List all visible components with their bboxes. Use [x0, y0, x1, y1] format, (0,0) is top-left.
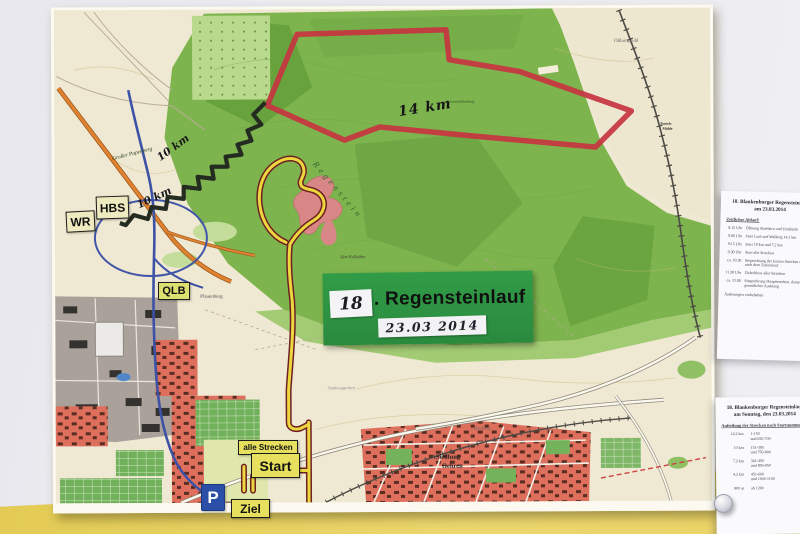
place-label-siedlung-1: Siedlung [436, 454, 461, 461]
event-title: . Regensteinlauf [374, 287, 526, 311]
place-label-siedlung-2: Gehren [442, 463, 463, 470]
schedule-text: Start alle Strecken [745, 251, 800, 257]
schedule-text: Zielschluss aller Strecken [745, 271, 800, 277]
distance-label: 4,2 km [720, 473, 751, 483]
schedule-row: ca. 12.00 Siegerehrung Hauptstrecken, da… [722, 279, 800, 290]
place-label-plauenberg: Plauenberg [200, 295, 223, 300]
start-numbers-paper: 18. Blankenburger Regensteinlauf am Sonn… [715, 397, 800, 534]
schedule-text: Start 10 km und 7,2 km [745, 243, 800, 249]
event-date-sticker: 23.03 2014 [378, 315, 487, 337]
schedule-time: 9.30 Uhr [723, 250, 742, 255]
numbers-row: 800 m ab 1200 [720, 486, 800, 492]
wall-photo: Großer Papenberg Regenstein Alte Kalköfe… [0, 0, 800, 534]
numbers-row: 7,2 km 301-450 und 850-950 [719, 459, 800, 469]
schedule-time: 11.30 Uhr [722, 271, 741, 276]
numbers-row: 4,2 km 451-600 und 1000-1150 [720, 472, 800, 482]
schedule-text: Öffnung Startbüro und Umkleide [746, 227, 800, 233]
schedule-time: 8.15 Uhr [724, 226, 743, 231]
schedule-subhead: Zeitlicher Ablauf: [726, 217, 800, 225]
push-pin-icon [714, 494, 733, 513]
place-label-heidberg: Heidberg [473, 426, 492, 431]
marker-qlb: QLB [158, 282, 190, 300]
schedule-paper: 18. Blankenburger Regensteinlauf am 23.0… [717, 191, 800, 361]
ziel-marker: Ziel [231, 499, 270, 518]
schedule-row: 8.15 Uhr Öffnung Startbüro und Umkleide [724, 226, 800, 233]
place-label-kalkoefen: Alte Kalköfen [340, 254, 366, 259]
start-marker: Start [251, 453, 300, 478]
place-label-osslumpfuhl: Oßlumpfuhl [614, 39, 639, 44]
schedule-text: Siegerehrung der kurzen Strecken direkt … [745, 259, 800, 270]
schedule-row: 11.30 Uhr Zielschluss aller Strecken [722, 271, 800, 278]
number-range: 151-300 und 750-800 [751, 445, 800, 455]
schedule-text: Start Lauf und Walking 14,2 km [745, 235, 800, 241]
number-range-extra: und 750-800 [751, 450, 800, 455]
number-range-extra: und 1000-1150 [751, 477, 800, 482]
numbers-subhead: Aufteilung der Strecken nach Startnummer… [721, 422, 800, 428]
number-range: 301-450 und 850-950 [751, 459, 800, 469]
schedule-row: 9.15 Uhr Start 10 km und 7,2 km [723, 242, 800, 249]
place-label-muehle-2: Mühle [662, 127, 672, 131]
number-range: ab 1200 [751, 486, 800, 491]
parking-sign-icon: P [201, 484, 225, 511]
marker-wr: WR [65, 210, 95, 232]
schedule-time: 9.15 Uhr [723, 242, 742, 247]
event-sign: 18 . Regensteinlauf 23.03 2014 [323, 271, 534, 346]
schedule-row: 9.30 Uhr Start alle Strecken [723, 250, 800, 257]
place-label-muehle-1: Bartels [660, 122, 672, 126]
distance-label: 800 m [720, 486, 751, 491]
distance-label: 7,2 km [719, 459, 750, 469]
number-range-extra: und 650-700 [750, 436, 800, 441]
distance-label: 10 km [719, 446, 750, 456]
distance-label: 14,2 km [719, 432, 750, 442]
number-range: 451-600 und 1000-1150 [751, 472, 800, 482]
marker-hbs: HBS [96, 195, 130, 219]
schedule-time: ca. 10.30 [723, 258, 742, 268]
numbers-title-line2: am Sonntag, den 23.03.2014 [719, 410, 800, 418]
schedule-text: Siegerehrung Hauptstrecken, danach gemüt… [744, 279, 800, 290]
numbers-row: 14,2 km 1-150 und 650-700 [719, 432, 800, 442]
schedule-row: ca. 10.30 Siegerehrung der kurzen Streck… [723, 258, 800, 269]
numbers-row: 10 km 151-300 und 750-800 [719, 445, 800, 455]
place-label-stadtweggraben: Stadtweggraben [328, 385, 355, 390]
topographic-map: Großer Papenberg Regenstein Alte Kalköfe… [51, 5, 715, 514]
schedule-footer: Änderungen vorbehalten [724, 292, 800, 298]
event-number-sticker: 18 [329, 289, 372, 318]
schedule-row: 9.00 Uhr Start Lauf und Walking 14,2 km [723, 234, 800, 241]
schedule-time: 9.00 Uhr [723, 234, 742, 239]
number-range-extra: und 850-950 [751, 463, 800, 468]
number-range: 1-150 und 650-700 [750, 432, 800, 442]
number-range-main: ab 1200 [751, 486, 800, 491]
map-artwork: Großer Papenberg Regenstein Alte Kalköfe… [54, 8, 712, 504]
elevation-label: 452 [150, 213, 156, 217]
schedule-time: ca. 12.00 [722, 279, 741, 289]
